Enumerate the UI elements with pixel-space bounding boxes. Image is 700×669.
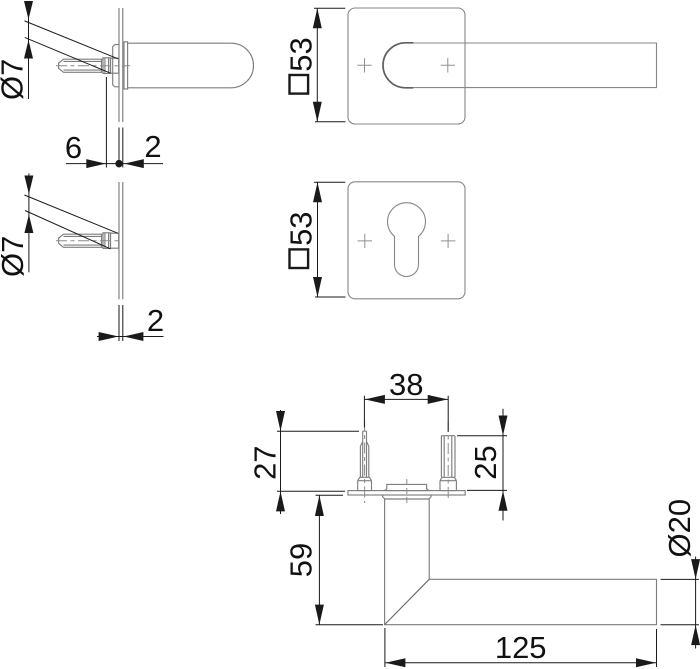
svg-text:Ø7: Ø7 [0,59,29,100]
svg-text:27: 27 [247,445,282,479]
svg-text:38: 38 [389,367,423,402]
svg-text:Ø20: Ø20 [662,499,697,558]
svg-text:53: 53 [284,37,319,71]
svg-text:2: 2 [144,129,161,164]
svg-text:2: 2 [147,303,164,338]
svg-text:Ø7: Ø7 [0,236,30,277]
svg-text:59: 59 [284,543,319,577]
svg-text:25: 25 [468,445,503,479]
svg-text:125: 125 [495,630,547,665]
svg-text:53: 53 [284,211,319,245]
svg-text:6: 6 [65,130,82,165]
